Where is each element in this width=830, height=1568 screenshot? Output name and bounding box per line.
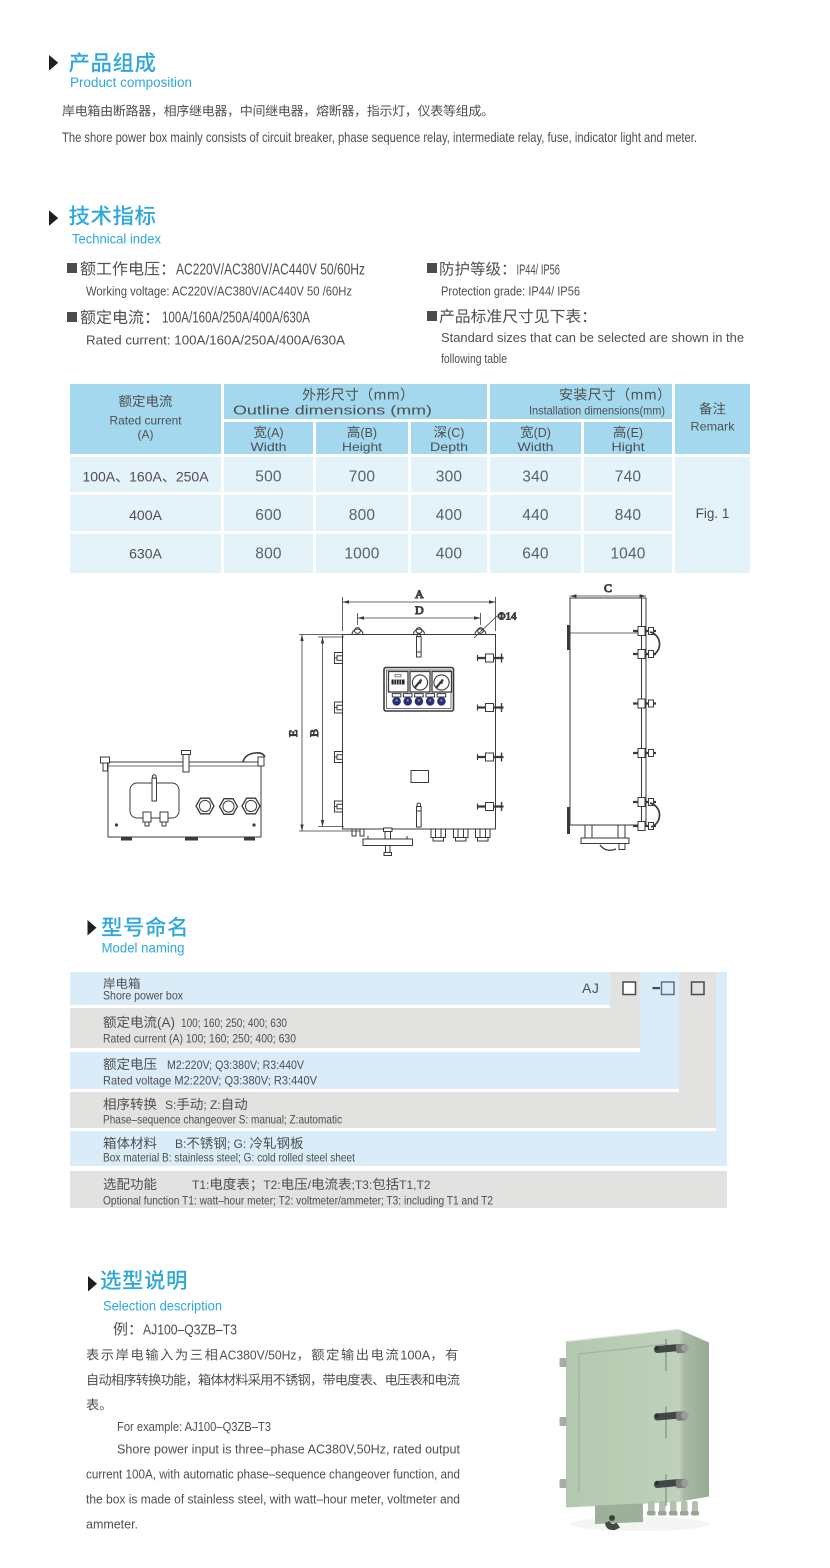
svg-text:Shore power box: Shore power box	[103, 989, 183, 1003]
svg-text:Working voltage: AC220V/AC380V: Working voltage: AC220V/AC380V/AC440V 50…	[86, 284, 352, 299]
svg-text:400: 400	[436, 546, 463, 563]
svg-text:1040: 1040	[610, 546, 645, 563]
svg-text:Φ14: Φ14	[498, 611, 518, 623]
svg-text:A: A	[415, 587, 424, 601]
svg-text:Product composition: Product composition	[70, 75, 192, 90]
svg-text:Phase–sequence changeover S:: Phase–sequence changeover S: manual; Z:a…	[103, 1113, 342, 1127]
svg-text:100A: 100A	[400, 1348, 430, 1363]
svg-text:the box is made of stainless s: the box is made of stainless steel, with…	[86, 1492, 460, 1507]
svg-text:(B): (B)	[360, 426, 377, 440]
svg-text:400A: 400A	[129, 507, 162, 523]
svg-text:(E): (E)	[626, 426, 643, 440]
svg-text:For example: AJ100–Q3ZB–T3: For example: AJ100–Q3ZB–T3	[117, 1419, 271, 1434]
svg-text:; G:: ; G:	[227, 1137, 246, 1151]
svg-text:ammeter.: ammeter.	[86, 1517, 138, 1532]
svg-text:600: 600	[255, 507, 282, 524]
svg-text:Model naming: Model naming	[102, 940, 185, 956]
svg-text:Installation dimensions(mm): Installation dimensions(mm)	[529, 404, 665, 418]
svg-text:T1:: T1:	[192, 1178, 209, 1192]
svg-text:160A: 160A	[129, 469, 162, 485]
svg-text:440: 440	[522, 507, 549, 524]
svg-text:Selection description: Selection description	[103, 1298, 222, 1314]
svg-text:Rated current: Rated current	[110, 414, 183, 428]
svg-text:640: 640	[522, 546, 549, 563]
svg-text:AC220V/AC380V/AC440V 50/60Hz: AC220V/AC380V/AC440V 50/60Hz	[176, 262, 365, 279]
svg-text:AC380V/50Hz: AC380V/50Hz	[219, 1348, 296, 1363]
svg-text:IP44/ IP56: IP44/ IP56	[517, 262, 561, 279]
svg-text:840: 840	[615, 507, 642, 524]
svg-text:Remark: Remark	[691, 420, 736, 434]
svg-text:Rated current: 100A/160A/250A/: Rated current: 100A/160A/250A/400A/630A	[86, 333, 345, 348]
svg-text:Width: Width	[251, 440, 287, 454]
svg-text:Hight: Hight	[612, 440, 646, 454]
svg-text:(C): (C)	[447, 426, 464, 440]
svg-text:100; 160; 250; 400; 630: 100; 160; 250; 400; 630	[181, 1016, 287, 1030]
svg-text:Height: Height	[342, 440, 383, 454]
svg-text:740: 740	[615, 469, 642, 486]
svg-text:Rated voltage M2:220V; Q3:38: Rated voltage M2:220V; Q3:380V; R3:440V	[103, 1074, 317, 1088]
svg-text:700: 700	[349, 469, 376, 486]
svg-text:AJ100–Q3ZB–T3: AJ100–Q3ZB–T3	[143, 1322, 237, 1339]
svg-text:(A): (A)	[157, 1015, 175, 1030]
svg-text:The shore power box mainly con: The shore power box mainly consists of c…	[62, 129, 697, 145]
svg-text:Width: Width	[518, 440, 554, 454]
svg-text:Technical index: Technical index	[72, 231, 161, 247]
svg-text:Optional function T1: watt–h: Optional function T1: watt–hour meter; T…	[103, 1194, 493, 1208]
svg-text:Standard sizes that can be sel: Standard sizes that can be selected are …	[441, 330, 744, 345]
svg-text:; Z:: ; Z:	[203, 1098, 220, 1112]
svg-text:100A: 100A	[82, 469, 115, 485]
svg-text:(D): (D)	[534, 426, 551, 440]
svg-text:;T3:: ;T3:	[352, 1178, 373, 1192]
svg-text:800: 800	[349, 507, 376, 524]
svg-text:Rated current (A) 100; 160; 25: Rated current (A) 100; 160; 250; 400; 63…	[103, 1032, 296, 1046]
svg-text:current 100A, with automatic p: current 100A, with automatic phase–seque…	[86, 1467, 460, 1482]
svg-text:(A): (A)	[267, 426, 284, 440]
svg-text:Shore power input is three: Shore power input is three–phase AC380V,…	[117, 1442, 460, 1457]
svg-text:300: 300	[436, 469, 463, 486]
svg-text:400: 400	[436, 507, 463, 524]
svg-text:340: 340	[522, 469, 549, 486]
svg-text:M2:220V; Q3:380V; R3:440V: M2:220V; Q3:380V; R3:440V	[167, 1058, 304, 1072]
svg-text:100A/160A/250A/400A/630A: 100A/160A/250A/400A/630A	[162, 310, 310, 327]
svg-text:Outline dimensions (mm): Outline dimensions (mm)	[233, 403, 432, 418]
svg-text:Fig. 1: Fig. 1	[696, 506, 730, 521]
svg-text:T1,T2: T1,T2	[399, 1178, 431, 1192]
svg-text:D: D	[415, 603, 424, 617]
svg-text:B:: B:	[175, 1137, 186, 1151]
svg-text:1000: 1000	[344, 546, 379, 563]
svg-text:250A: 250A	[176, 469, 209, 485]
svg-text:B: B	[307, 729, 321, 737]
svg-text:500: 500	[255, 469, 282, 486]
svg-text:C: C	[604, 581, 612, 595]
svg-text:T2:: T2:	[263, 1178, 280, 1192]
svg-text:Protection grade: IP44/ IP56: Protection grade: IP44/ IP56	[441, 284, 580, 299]
svg-text:630A: 630A	[129, 546, 162, 562]
svg-text:Depth: Depth	[430, 440, 468, 454]
svg-text:AJ: AJ	[582, 980, 599, 996]
svg-text:following table: following table	[441, 351, 507, 366]
svg-text:S:: S:	[165, 1098, 176, 1112]
svg-text:(A): (A)	[138, 428, 154, 442]
svg-text:Box material B: stainless st: Box material B: stainless steel; G: cold…	[103, 1151, 356, 1165]
svg-text:800: 800	[255, 546, 282, 563]
svg-text:E: E	[286, 730, 300, 737]
